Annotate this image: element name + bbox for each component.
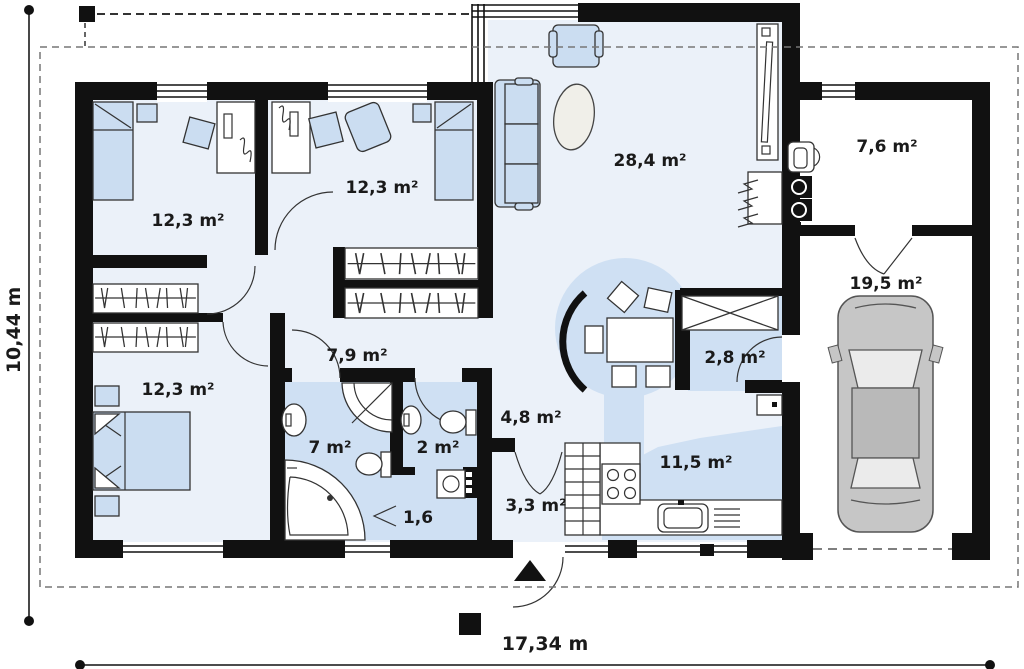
toilet-icon bbox=[356, 452, 391, 477]
floor-plan-page: 10,44 m 17,34 m 12,3 m² 12,3 m² 12,3 m² … bbox=[0, 0, 1024, 669]
car-icon bbox=[828, 296, 943, 532]
washer-dryer-icon bbox=[786, 176, 812, 226]
radiator-icon bbox=[757, 24, 778, 160]
window-icon bbox=[822, 80, 855, 102]
room-label-closet: 1,6 bbox=[403, 508, 433, 528]
washbasin-icon bbox=[401, 406, 421, 434]
dining-table-icon bbox=[607, 318, 673, 362]
washbasin-icon bbox=[282, 404, 306, 436]
wardrobe-icon bbox=[345, 248, 478, 279]
room-label-hallway: 7,9 m² bbox=[326, 346, 387, 366]
room-label-living: 28,4 m² bbox=[613, 151, 686, 171]
desk-icon bbox=[217, 102, 255, 173]
room-label-pantry: 2,8 m² bbox=[704, 348, 765, 368]
survey-marker bbox=[79, 6, 95, 22]
entrance-arrow-icon bbox=[514, 560, 546, 581]
nightstand-icon bbox=[413, 104, 431, 122]
room-label-bedroom1: 12,3 m² bbox=[151, 211, 224, 231]
desk-icon bbox=[272, 102, 310, 173]
window-icon bbox=[123, 542, 223, 558]
room-label-bedroom3: 12,3 m² bbox=[141, 380, 214, 400]
chair-icon bbox=[612, 366, 636, 387]
bed-icon bbox=[93, 102, 133, 200]
armchair-icon bbox=[549, 25, 603, 67]
floor-plan-drawing: 10,44 m 17,34 m 12,3 m² 12,3 m² 12,3 m² … bbox=[0, 0, 1024, 669]
window-icon bbox=[637, 542, 747, 558]
room-label-bathroom: 7 m² bbox=[309, 438, 352, 458]
door-arc-entrance bbox=[513, 557, 563, 607]
room-label-hall: 4,8 m² bbox=[500, 408, 561, 428]
shelf-cabinet-icon bbox=[565, 443, 600, 535]
bed-icon bbox=[435, 102, 473, 200]
x-closet-icon bbox=[682, 296, 778, 330]
room-label-entry: 3,3 m² bbox=[505, 496, 566, 516]
nightstand-icon bbox=[137, 104, 157, 122]
vent-box-icon bbox=[757, 395, 782, 415]
stove-icon bbox=[602, 464, 640, 504]
toilet-icon bbox=[440, 410, 476, 435]
chair-icon bbox=[644, 288, 672, 313]
window-icon bbox=[345, 542, 390, 558]
sofa-icon bbox=[495, 78, 540, 210]
room-label-wc: 2 m² bbox=[417, 438, 460, 458]
room-label-bedroom2: 12,3 m² bbox=[345, 178, 418, 198]
window-icon bbox=[565, 542, 608, 558]
survey-marker bbox=[459, 613, 481, 635]
wardrobe-icon bbox=[93, 323, 198, 352]
chair-icon bbox=[585, 326, 603, 353]
dimension-width-label: 17,34 m bbox=[502, 633, 589, 655]
room-label-utility: 7,6 m² bbox=[856, 137, 917, 157]
dimension-height-label: 10,44 m bbox=[3, 287, 25, 374]
window-icon bbox=[328, 80, 427, 102]
wardrobe-icon bbox=[93, 284, 198, 313]
room-label-garage: 19,5 m² bbox=[849, 274, 922, 294]
window-icon bbox=[157, 80, 207, 102]
double-bed-icon bbox=[93, 412, 190, 490]
nightstand-icon bbox=[95, 496, 119, 516]
chair-icon bbox=[646, 366, 670, 387]
nightstand-icon bbox=[95, 386, 119, 406]
wardrobe-icon bbox=[345, 288, 478, 318]
room-label-kitchen: 11,5 m² bbox=[659, 453, 732, 473]
